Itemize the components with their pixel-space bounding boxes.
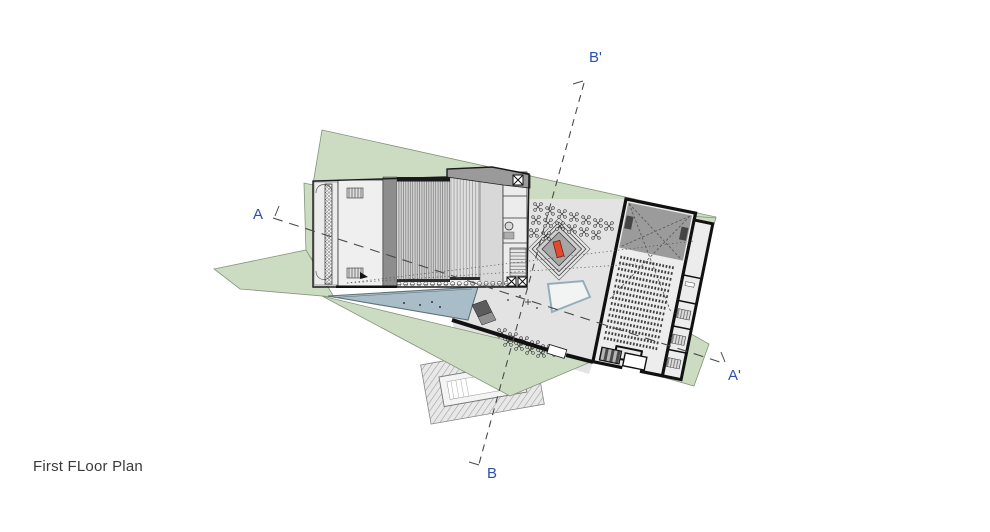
counter-fixture	[504, 232, 514, 239]
shaft-icon	[518, 277, 527, 286]
corridor-band	[383, 177, 397, 286]
side-hall-rigging	[450, 176, 480, 279]
shaft-icon	[513, 175, 523, 185]
foyer-strip	[480, 172, 503, 286]
section-label-b: B	[487, 465, 497, 482]
theatre-block	[313, 167, 530, 287]
section-label-a-prime: A'	[728, 367, 741, 384]
gallery-hatched-wall	[325, 184, 332, 284]
side-hall-bottom-wall	[450, 277, 480, 280]
round-fixture-icon	[505, 222, 513, 230]
page-title: First FLoor Plan	[33, 458, 143, 475]
main-hall-rigging	[397, 181, 450, 280]
section-label-a: A	[253, 206, 263, 223]
floor-plan-slide: A A' B' B First FLoor Plan	[0, 0, 990, 532]
shaft-icon	[507, 277, 516, 286]
floor-plan-drawing: A A' B' B	[0, 0, 990, 532]
lawn-west-strip	[304, 183, 313, 260]
section-label-b-prime: B'	[589, 49, 602, 66]
main-hall-bottom-wall	[397, 279, 450, 282]
stair-run-icon	[347, 188, 363, 198]
